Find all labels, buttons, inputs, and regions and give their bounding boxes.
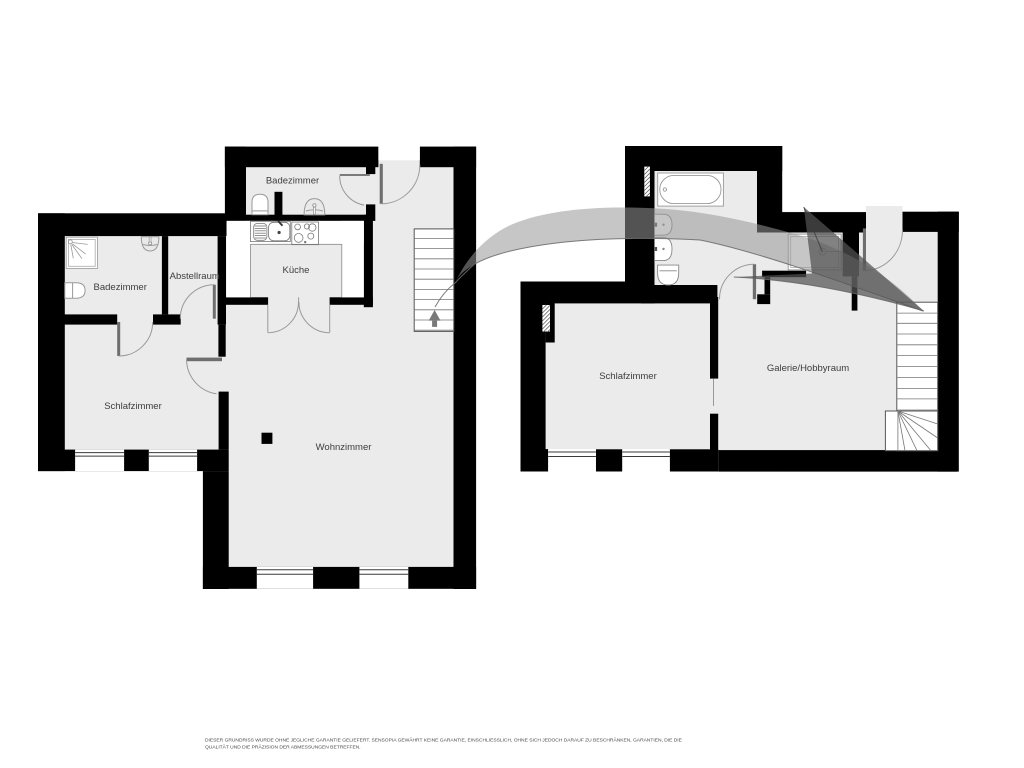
svg-text:Schlafzimmer: Schlafzimmer: [104, 401, 162, 412]
svg-text:DIESER GRUNDRISS WURDE OHNE JE: DIESER GRUNDRISS WURDE OHNE JEGLICHE GAR…: [205, 737, 683, 744]
svg-text:Wohnzimmer: Wohnzimmer: [316, 442, 372, 453]
svg-text:Galerie/Hobbyraum: Galerie/Hobbyraum: [767, 363, 849, 374]
svg-text:QUALITÄT UND DIE PRÄZISION DER: QUALITÄT UND DIE PRÄZISION DER ABMESSUNG…: [205, 744, 361, 751]
svg-text:Abstellraum: Abstellraum: [170, 271, 220, 282]
svg-text:Badezimmer: Badezimmer: [266, 175, 319, 186]
svg-text:Küche: Küche: [283, 265, 310, 276]
svg-text:Schlafzimmer: Schlafzimmer: [599, 371, 657, 382]
svg-text:Badezimmer: Badezimmer: [94, 282, 147, 293]
